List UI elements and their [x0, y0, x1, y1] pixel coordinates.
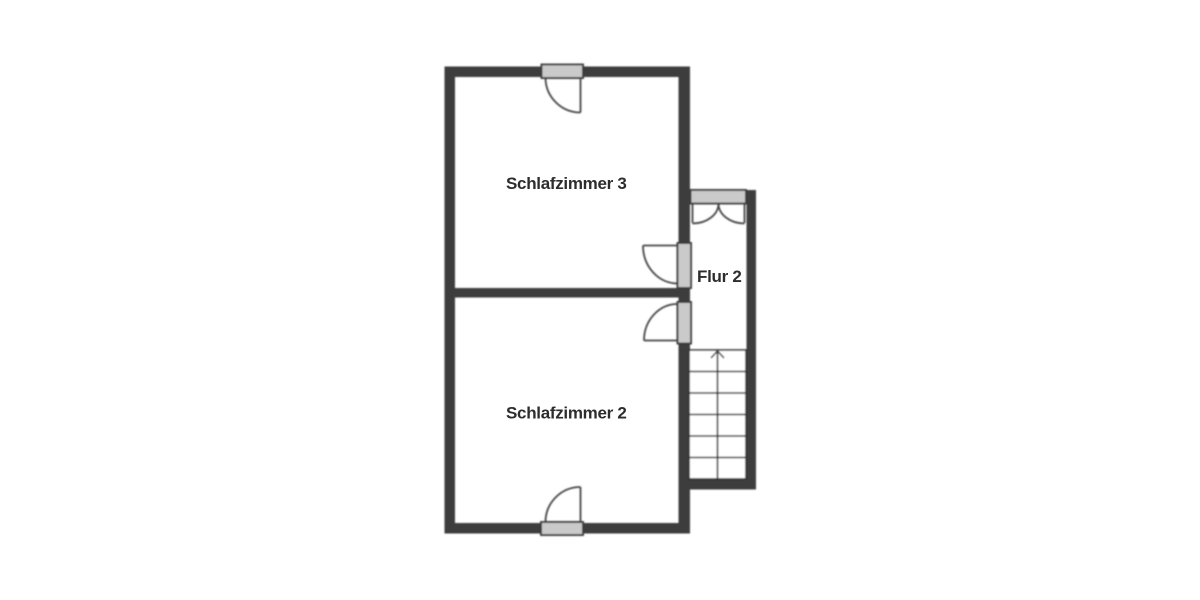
svg-text:Schlafzimmer 2: Schlafzimmer 2: [506, 404, 627, 423]
svg-text:Flur 2: Flur 2: [697, 267, 742, 286]
svg-text:Schlafzimmer 3: Schlafzimmer 3: [506, 174, 627, 193]
